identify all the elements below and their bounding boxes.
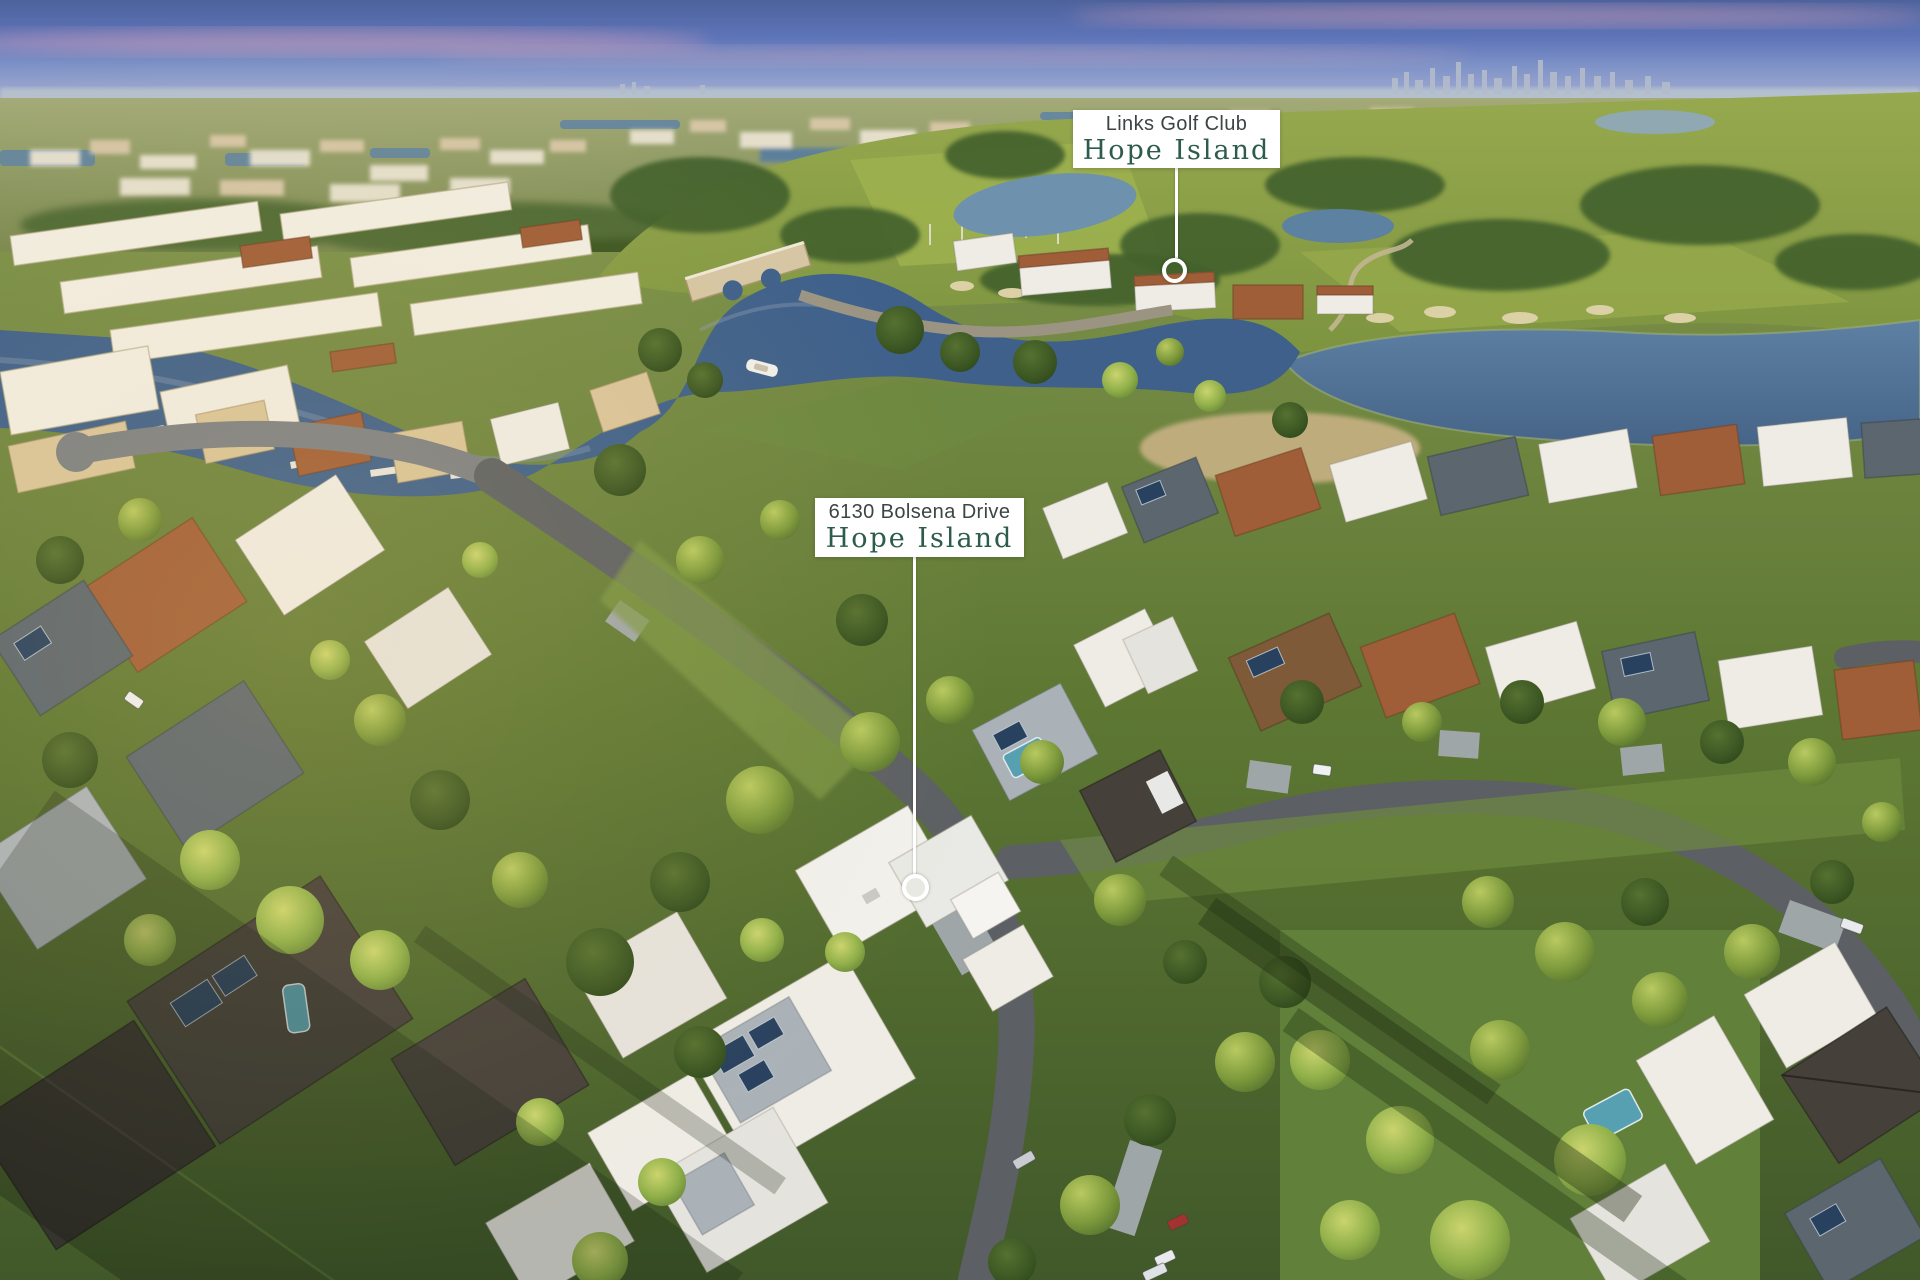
property-callout: 6130 Bolsena Drive Hope Island bbox=[815, 498, 1024, 557]
property-marker-icon bbox=[902, 874, 929, 901]
property-callout-line2: Hope Island bbox=[826, 524, 1014, 554]
golf-club-callout-line1: Links Golf Club bbox=[1106, 113, 1248, 135]
golf-club-callout-line2: Hope Island bbox=[1083, 136, 1271, 166]
property-callout-line1: 6130 Bolsena Drive bbox=[829, 501, 1011, 523]
golf-club-marker-icon bbox=[1162, 258, 1187, 283]
sunset-light-wash bbox=[0, 0, 1000, 1280]
golf-club-leader-line bbox=[1175, 168, 1178, 258]
property-leader-line bbox=[913, 557, 916, 875]
aerial-scene bbox=[0, 0, 1920, 1280]
golf-club-callout: Links Golf Club Hope Island bbox=[1073, 110, 1280, 168]
aerial-photo-hope-island: Links Golf Club Hope Island 6130 Bolsena… bbox=[0, 0, 1920, 1280]
